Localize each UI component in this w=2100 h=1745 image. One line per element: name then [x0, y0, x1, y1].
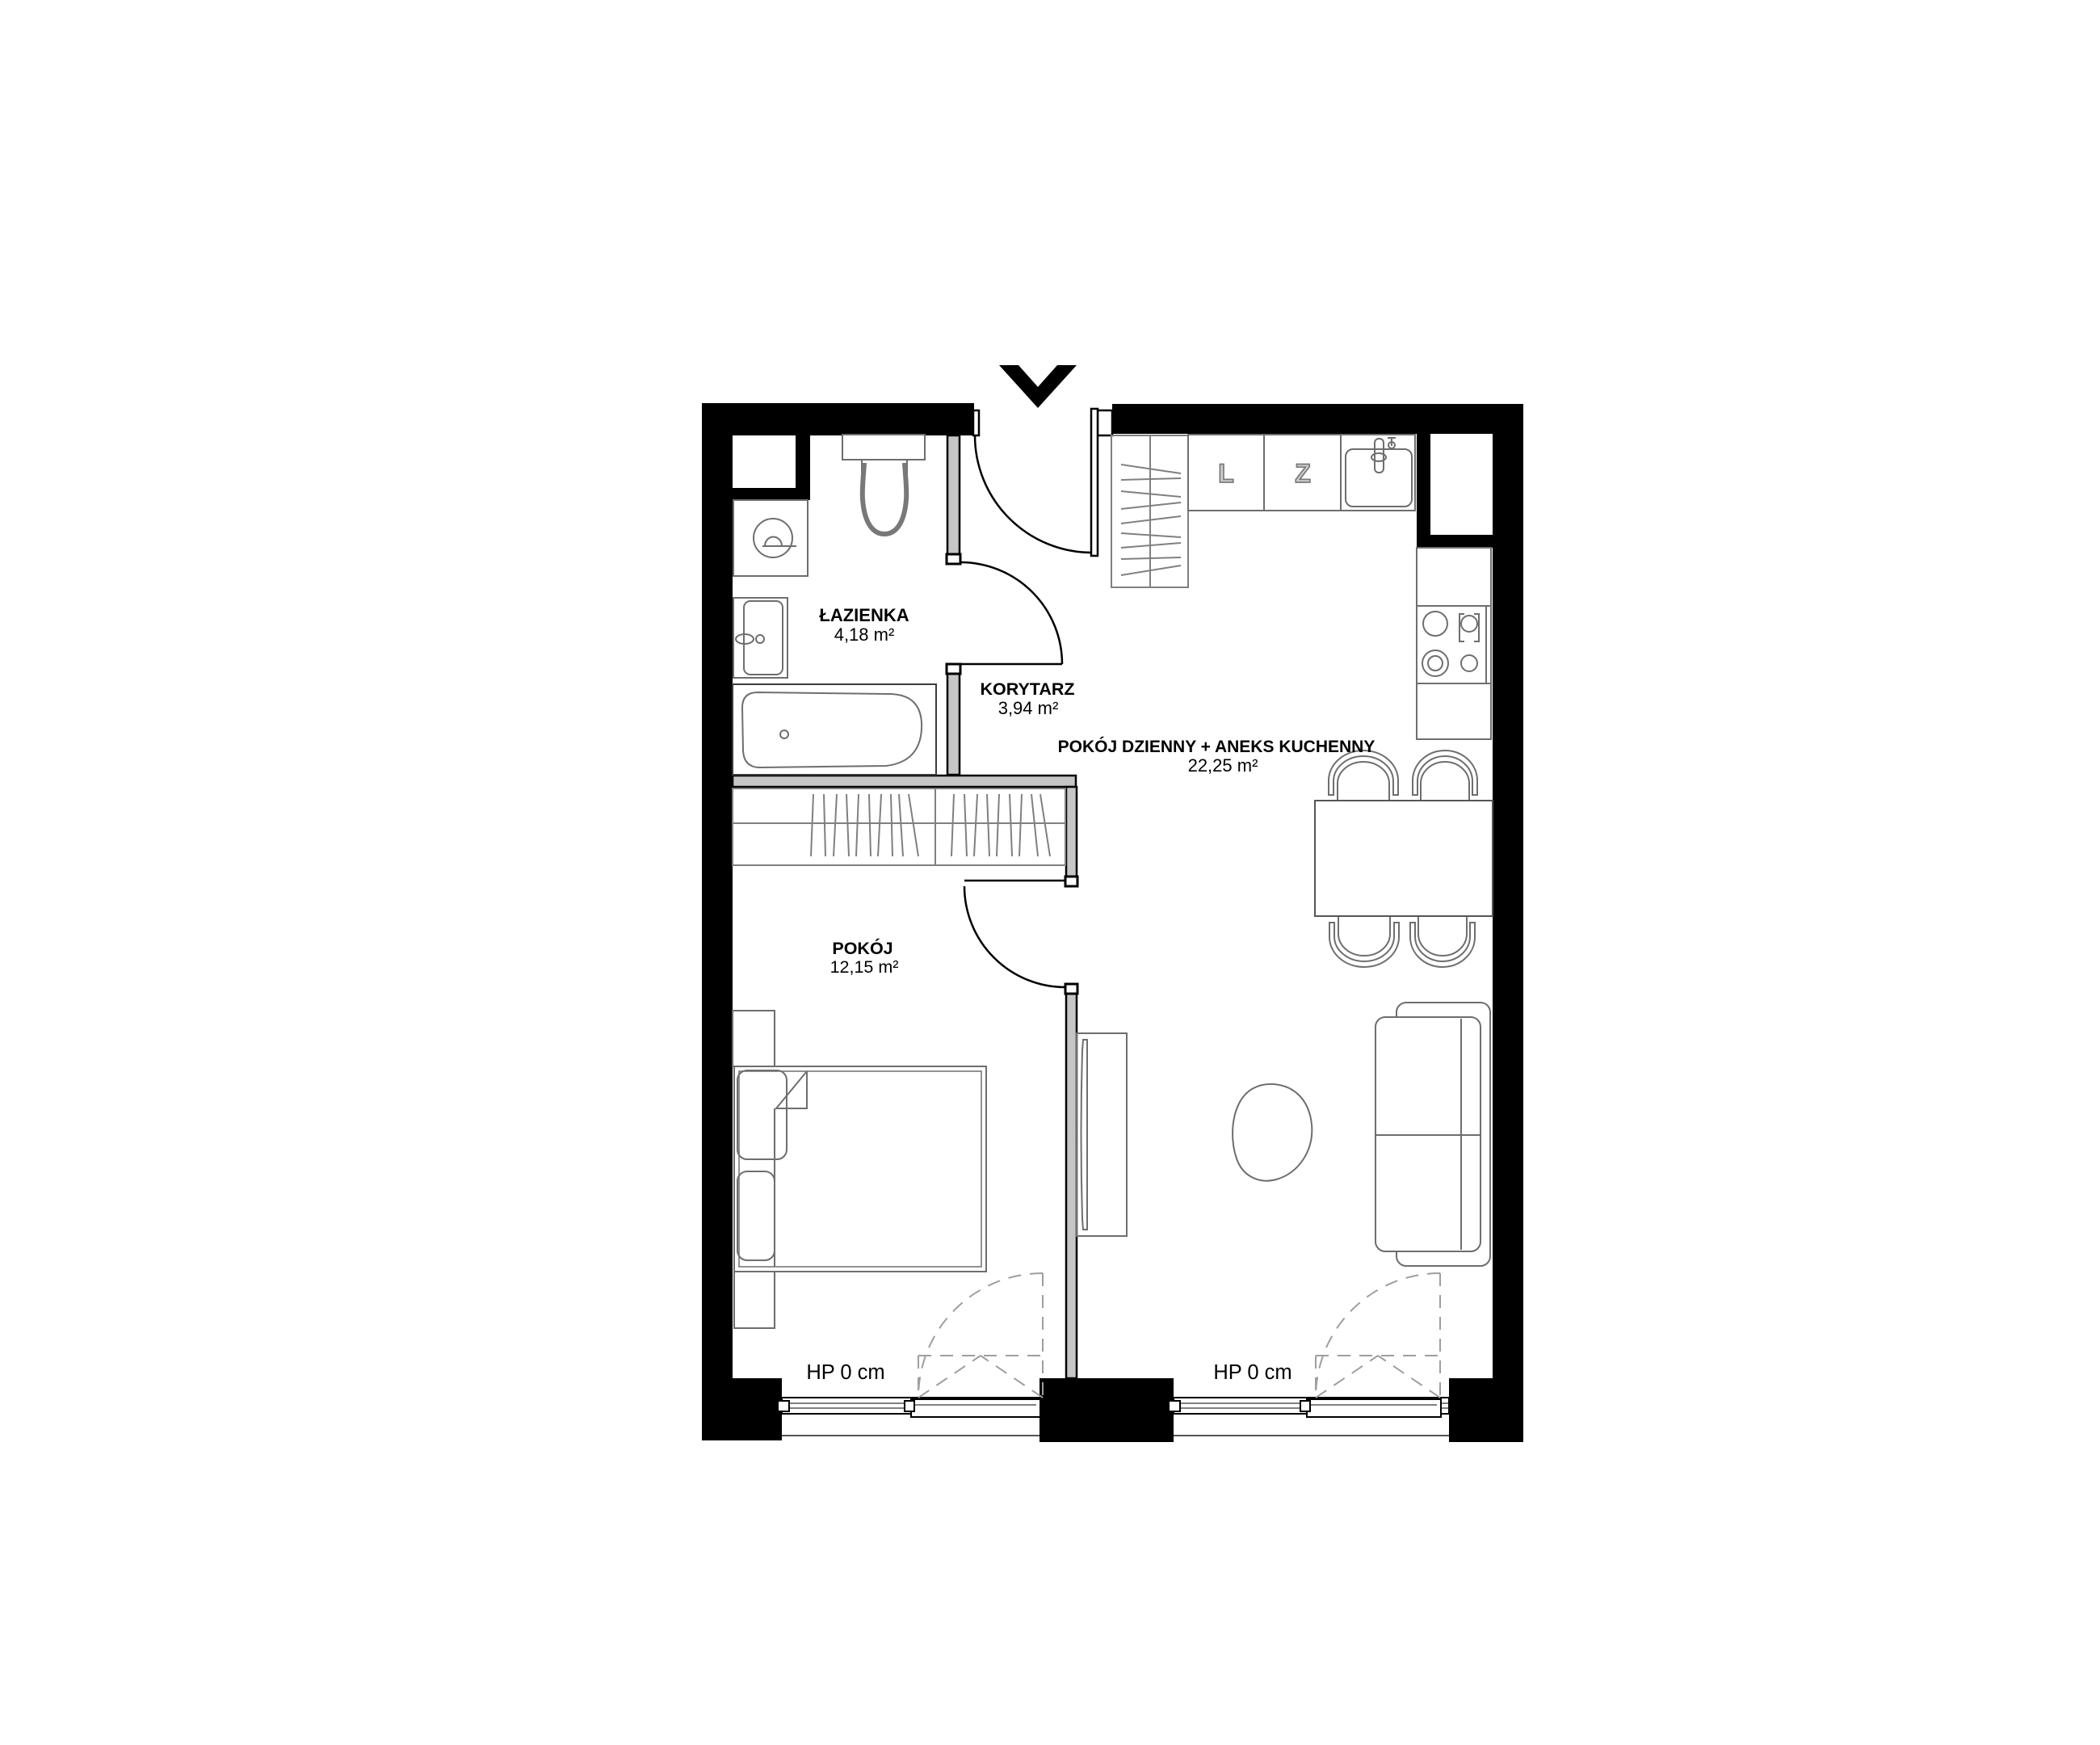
svg-text:ŁAZIENKA: ŁAZIENKA	[819, 605, 909, 625]
svg-text:HP 0 cm: HP 0 cm	[806, 1361, 884, 1384]
svg-text:3,94 m²: 3,94 m²	[998, 698, 1059, 718]
svg-text:KORYTARZ: KORYTARZ	[980, 679, 1074, 699]
svg-text:4,18 m²: 4,18 m²	[834, 624, 895, 645]
svg-text:12,15 m²: 12,15 m²	[830, 957, 899, 977]
svg-text:HP 0 cm: HP 0 cm	[1213, 1361, 1291, 1384]
svg-text:POKÓJ: POKÓJ	[832, 938, 892, 958]
svg-text:Z: Z	[1295, 459, 1311, 488]
svg-text:L: L	[1218, 459, 1234, 488]
svg-text:POKÓJ DZIENNY + ANEKS KUCHENNY: POKÓJ DZIENNY + ANEKS KUCHENNY	[1058, 737, 1375, 756]
svg-text:22,25 m²: 22,25 m²	[1188, 755, 1258, 776]
